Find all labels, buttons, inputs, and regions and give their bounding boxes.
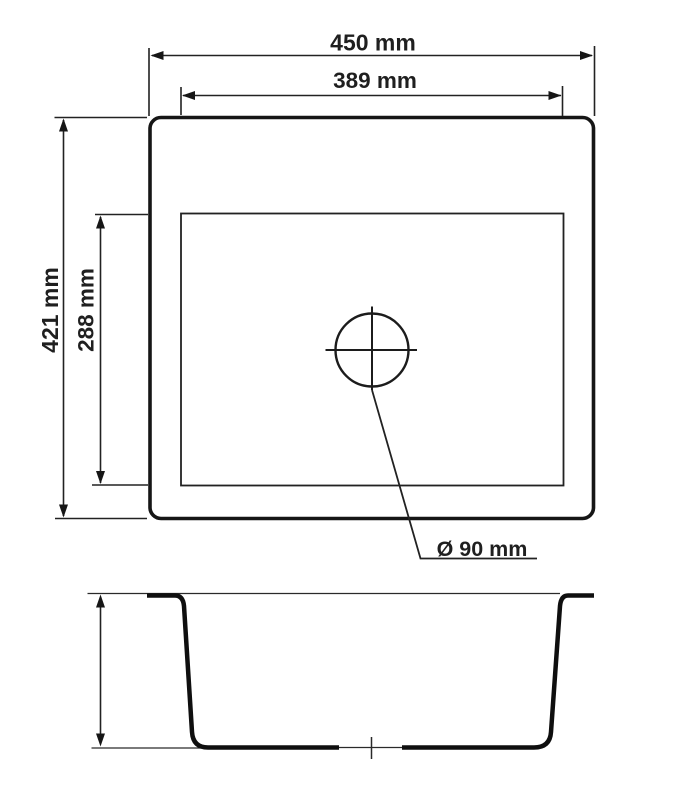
- svg-text:Ø 90 mm: Ø 90 mm: [437, 537, 528, 561]
- svg-text:450 mm: 450 mm: [330, 30, 416, 56]
- svg-text:421 mm: 421 mm: [37, 267, 63, 353]
- svg-text:288 mm: 288 mm: [74, 268, 99, 352]
- svg-text:389 mm: 389 mm: [333, 68, 417, 93]
